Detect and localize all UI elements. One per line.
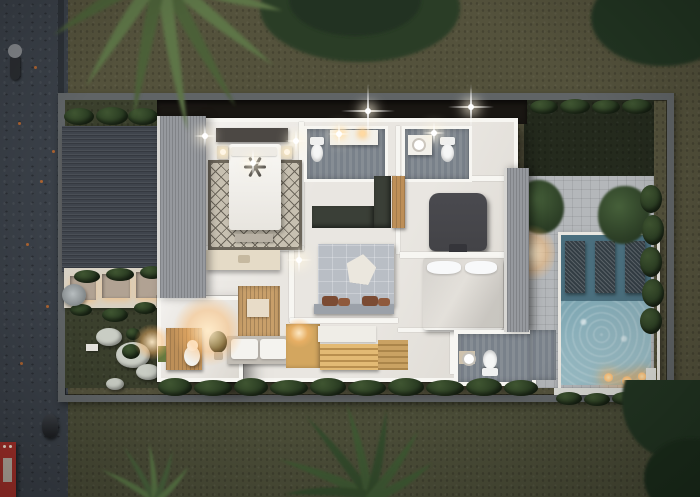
garden-bench bbox=[86, 344, 98, 351]
east-edge-roof bbox=[504, 168, 529, 332]
daybed bbox=[227, 336, 291, 364]
hedge-bush bbox=[158, 378, 192, 396]
interior-wall bbox=[290, 318, 398, 323]
nightstand-lamp bbox=[220, 149, 226, 155]
truck-light bbox=[3, 445, 6, 448]
pool-lounger bbox=[565, 241, 585, 293]
planter-shrub bbox=[106, 268, 134, 281]
brown-pillow bbox=[338, 298, 350, 306]
stair-landing bbox=[318, 326, 376, 342]
fallen-leaf bbox=[52, 150, 55, 153]
brown-pillow bbox=[378, 298, 390, 306]
garden-plant bbox=[122, 344, 140, 359]
fallen-leaf bbox=[40, 180, 43, 183]
toilet-bowl bbox=[483, 350, 497, 369]
parked-scooter bbox=[42, 414, 58, 438]
pool-underwater-light bbox=[603, 373, 614, 382]
wardrobe-cabinet-run bbox=[374, 176, 391, 228]
brown-pillow bbox=[362, 296, 378, 306]
motorcycle-with-rider bbox=[6, 44, 24, 84]
brown-pillow bbox=[322, 296, 338, 306]
hedge-bush bbox=[642, 279, 664, 307]
walkway-shrub bbox=[134, 302, 156, 314]
wardrobe-cabinet-run bbox=[312, 206, 374, 228]
east-bed bbox=[423, 258, 503, 330]
hedge-bush bbox=[612, 392, 638, 405]
red-truck bbox=[0, 442, 16, 497]
toilet bbox=[310, 137, 324, 162]
rider bbox=[8, 44, 22, 58]
bottom-lawn bbox=[0, 400, 700, 497]
hedge-bush bbox=[270, 380, 308, 396]
bed-pillow-band bbox=[231, 147, 277, 156]
stepping-stone bbox=[96, 328, 122, 346]
planter-shrub bbox=[74, 270, 100, 283]
walkway-shrub bbox=[102, 308, 128, 322]
fallen-leaf bbox=[20, 362, 23, 365]
ceiling-fan bbox=[244, 156, 266, 178]
toilet-bowl bbox=[441, 144, 454, 162]
vanity-light bbox=[338, 131, 343, 136]
hedge-bush bbox=[642, 215, 664, 245]
hedge-bush bbox=[504, 380, 538, 396]
potted-plant bbox=[209, 331, 227, 353]
stair-upper-flight bbox=[286, 324, 320, 368]
toilet bbox=[482, 350, 498, 376]
hedge-bush bbox=[640, 308, 662, 334]
hedge-bush bbox=[348, 380, 386, 396]
toilet-bowl bbox=[311, 144, 323, 162]
vanity-basin bbox=[238, 255, 250, 263]
master-tv-console bbox=[216, 128, 288, 142]
hedge-bush bbox=[388, 378, 424, 396]
plant-pot bbox=[214, 352, 223, 360]
wood-deck-floor bbox=[378, 340, 408, 370]
pool-step bbox=[646, 368, 656, 392]
hedge-bush bbox=[128, 108, 158, 125]
fallen-leaf bbox=[26, 243, 29, 246]
fallen-leaf bbox=[34, 66, 37, 69]
pool-lounger bbox=[595, 241, 615, 293]
hedge-bush bbox=[556, 392, 582, 405]
toilet bbox=[440, 137, 455, 162]
hedge-bush bbox=[584, 393, 610, 406]
fallen-leaf bbox=[18, 122, 21, 125]
truck-rack bbox=[3, 458, 12, 482]
hedge-bush bbox=[96, 107, 128, 125]
bed-pillow bbox=[427, 261, 461, 274]
garden-plant bbox=[126, 328, 140, 340]
truck-light bbox=[9, 445, 12, 448]
hedge-bush bbox=[530, 100, 558, 114]
hedge-bush bbox=[426, 380, 464, 396]
stepping-stone bbox=[106, 378, 124, 390]
hedge-bush bbox=[592, 100, 620, 114]
stair-lower-flight bbox=[320, 344, 378, 370]
hedge-bush bbox=[622, 99, 652, 114]
hedge-bush bbox=[234, 378, 268, 396]
nightstand-lamp bbox=[284, 149, 290, 155]
white-stool-top bbox=[187, 340, 198, 351]
water-feature bbox=[62, 284, 86, 306]
artwork bbox=[247, 299, 269, 317]
hedge-bush bbox=[310, 378, 346, 396]
dark-armchair bbox=[429, 193, 487, 251]
curb bbox=[58, 0, 64, 95]
carport-roof bbox=[62, 126, 158, 272]
aerial-villa-render bbox=[0, 0, 700, 497]
pool-deep-water bbox=[561, 301, 651, 385]
daybed-cushion bbox=[260, 339, 287, 359]
west-wing-roof bbox=[157, 116, 206, 298]
daybed-cushion bbox=[231, 339, 258, 359]
hedge-bush bbox=[194, 380, 232, 396]
toilet-tank bbox=[482, 368, 498, 376]
fallen-leaf bbox=[46, 305, 49, 308]
hedge-bush bbox=[466, 378, 502, 396]
hedge-bush bbox=[640, 185, 662, 213]
hedge-bush bbox=[64, 108, 94, 125]
vanity-light bbox=[360, 131, 365, 136]
hedge-bush bbox=[638, 393, 662, 405]
foot-bench bbox=[235, 234, 273, 242]
round-basin bbox=[412, 138, 426, 152]
green-towel bbox=[158, 346, 166, 362]
wood-cabinet bbox=[392, 176, 405, 228]
bed-pillow bbox=[465, 261, 497, 274]
round-basin bbox=[462, 352, 476, 366]
service-deck bbox=[530, 330, 556, 380]
hedge-bush bbox=[560, 99, 590, 114]
hedge-bush bbox=[640, 247, 662, 277]
pool-underwater-light bbox=[621, 376, 633, 386]
